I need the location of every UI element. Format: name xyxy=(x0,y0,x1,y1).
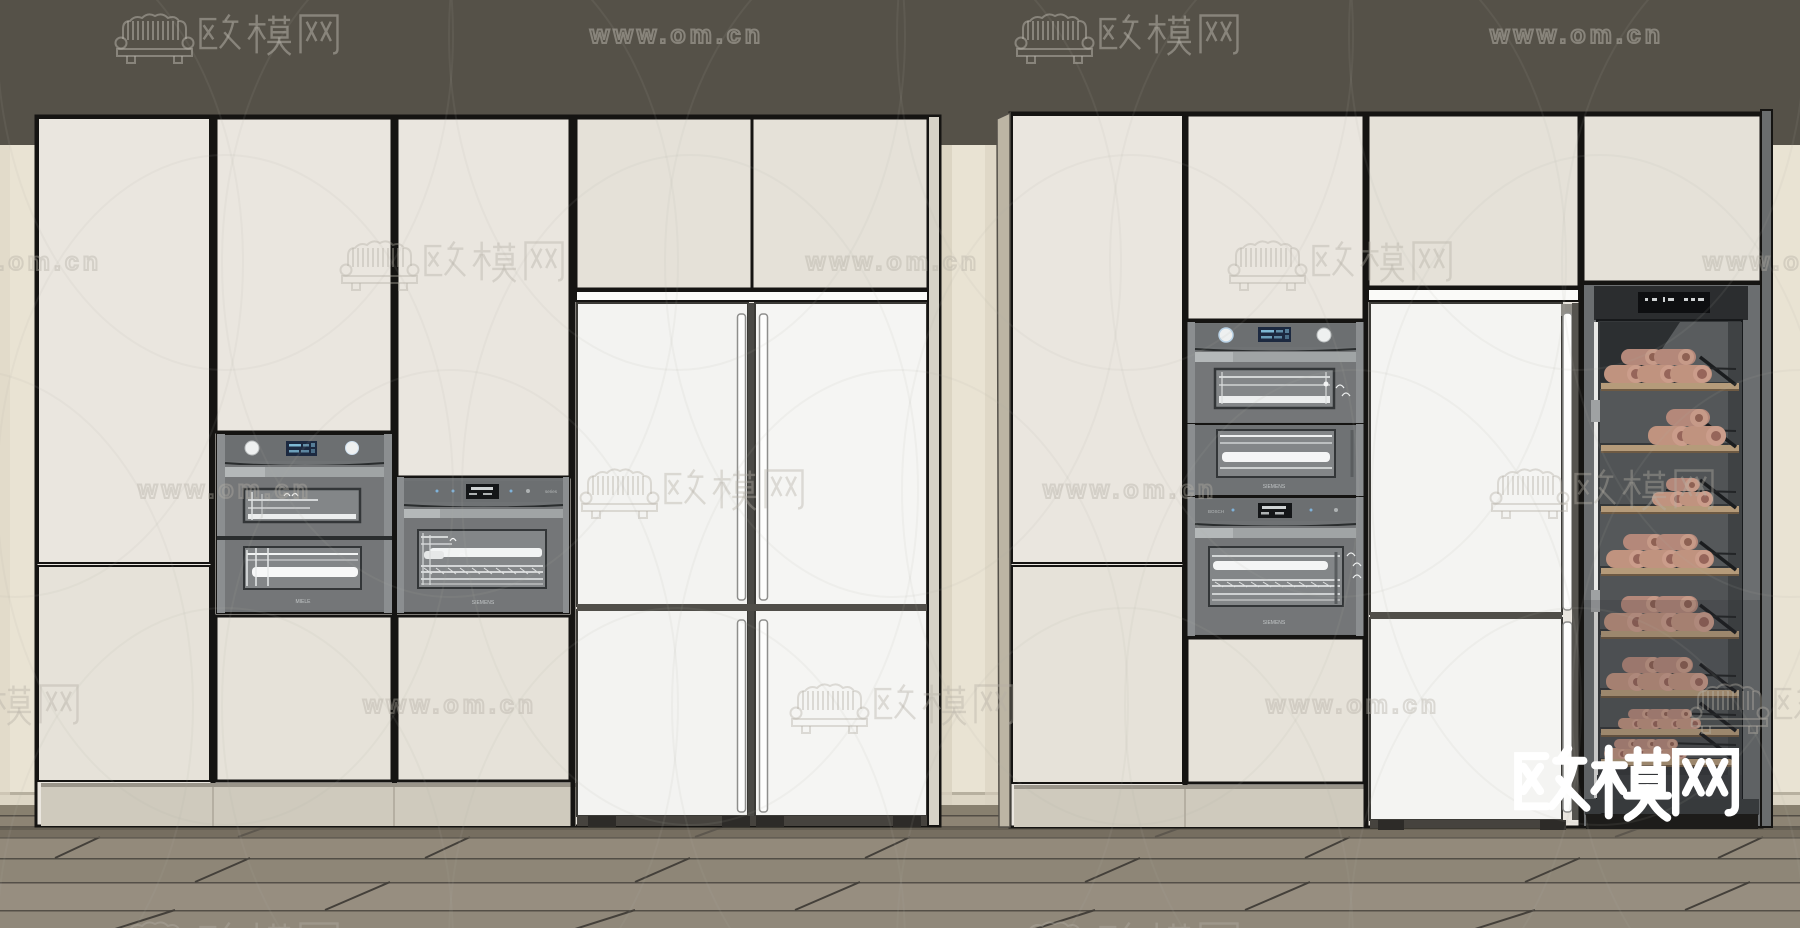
svg-text:BOSCH: BOSCH xyxy=(1208,509,1224,514)
svg-text:www.om.cn: www.om.cn xyxy=(362,691,537,719)
svg-text:SIEMENS: SIEMENS xyxy=(1263,620,1286,626)
svg-text:www.om.cn: www.om.cn xyxy=(137,476,312,504)
svg-text:www.om.cn: www.om.cn xyxy=(1265,691,1440,719)
svg-text:www.om.cn: www.om.cn xyxy=(1042,476,1217,504)
svg-text:MIELE: MIELE xyxy=(295,599,311,605)
svg-text:series: series xyxy=(545,489,558,494)
svg-text:www.om.cn: www.om.cn xyxy=(0,248,102,276)
svg-text:www.om.cn: www.om.cn xyxy=(1489,21,1664,49)
svg-text:www.om.cn: www.om.cn xyxy=(589,21,764,49)
svg-text:www.om.cn: www.om.cn xyxy=(805,248,980,276)
svg-text:www.om.cn: www.om.cn xyxy=(1702,248,1800,276)
svg-text:SIEMENS: SIEMENS xyxy=(1263,484,1286,490)
